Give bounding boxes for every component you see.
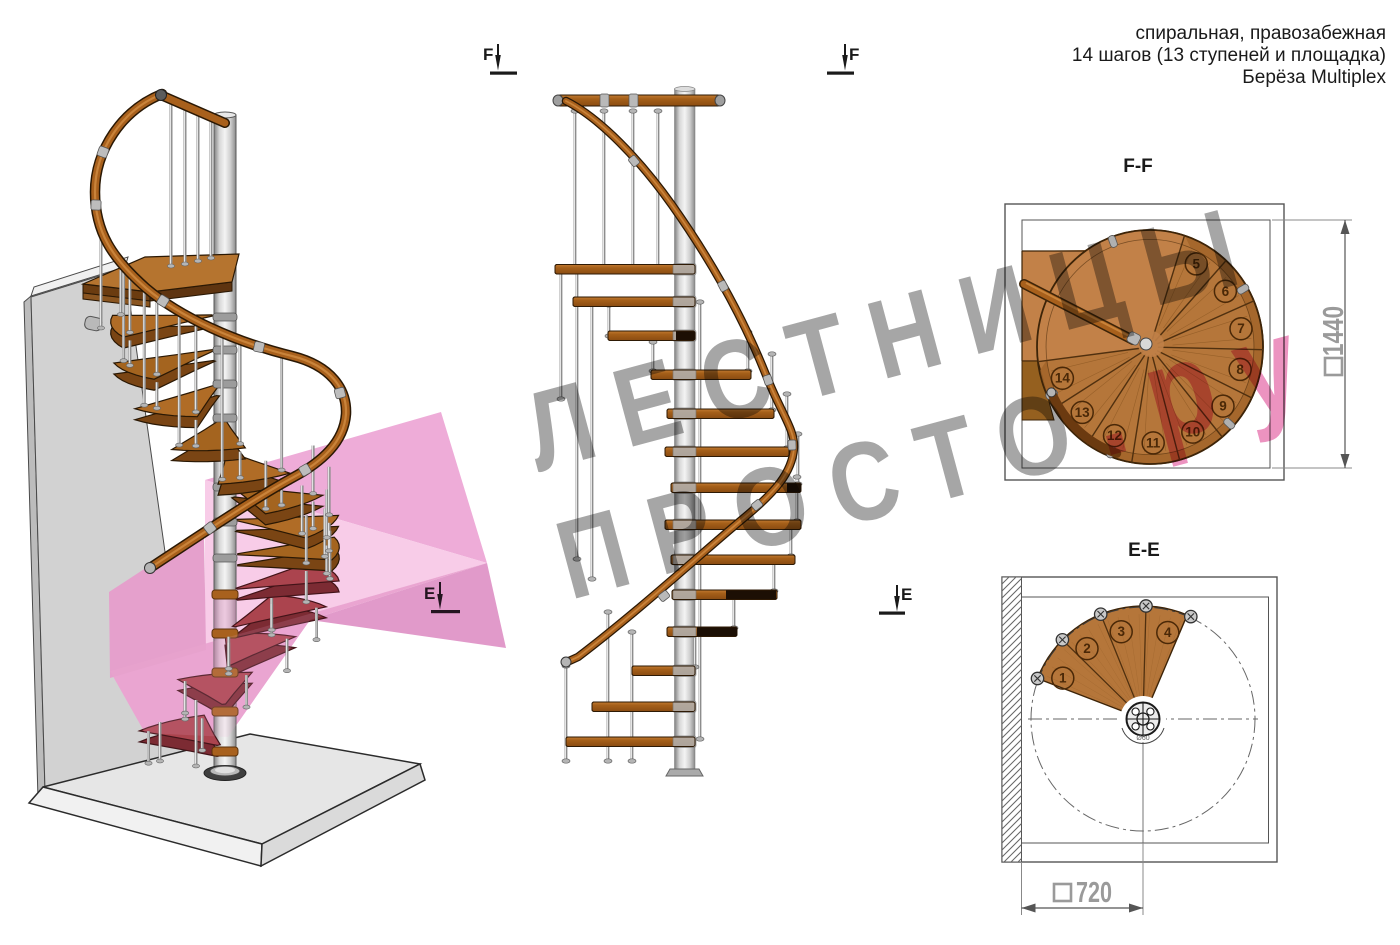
svg-text:Берёза Multiplex: Берёза Multiplex: [1242, 67, 1386, 88]
svg-text:720: 720: [1076, 877, 1112, 909]
svg-text:F: F: [849, 45, 859, 64]
svg-text:Ø60: Ø60: [1136, 735, 1149, 742]
svg-text:спиральная, правозабежная: спиральная, правозабежная: [1136, 23, 1386, 44]
svg-text:1440: 1440: [1318, 306, 1350, 356]
svg-text:3: 3: [1117, 624, 1125, 639]
svg-text:E: E: [901, 585, 912, 604]
svg-text:14 шагов (13 ступеней и площад: 14 шагов (13 ступеней и площадка): [1072, 45, 1386, 66]
svg-text:2: 2: [1083, 641, 1091, 656]
svg-text:F-F: F-F: [1123, 156, 1153, 177]
svg-text:E-E: E-E: [1128, 540, 1160, 561]
svg-text:E: E: [424, 584, 435, 603]
svg-text:F: F: [483, 45, 493, 64]
svg-text:1: 1: [1059, 671, 1067, 686]
svg-text:4: 4: [1164, 625, 1172, 640]
